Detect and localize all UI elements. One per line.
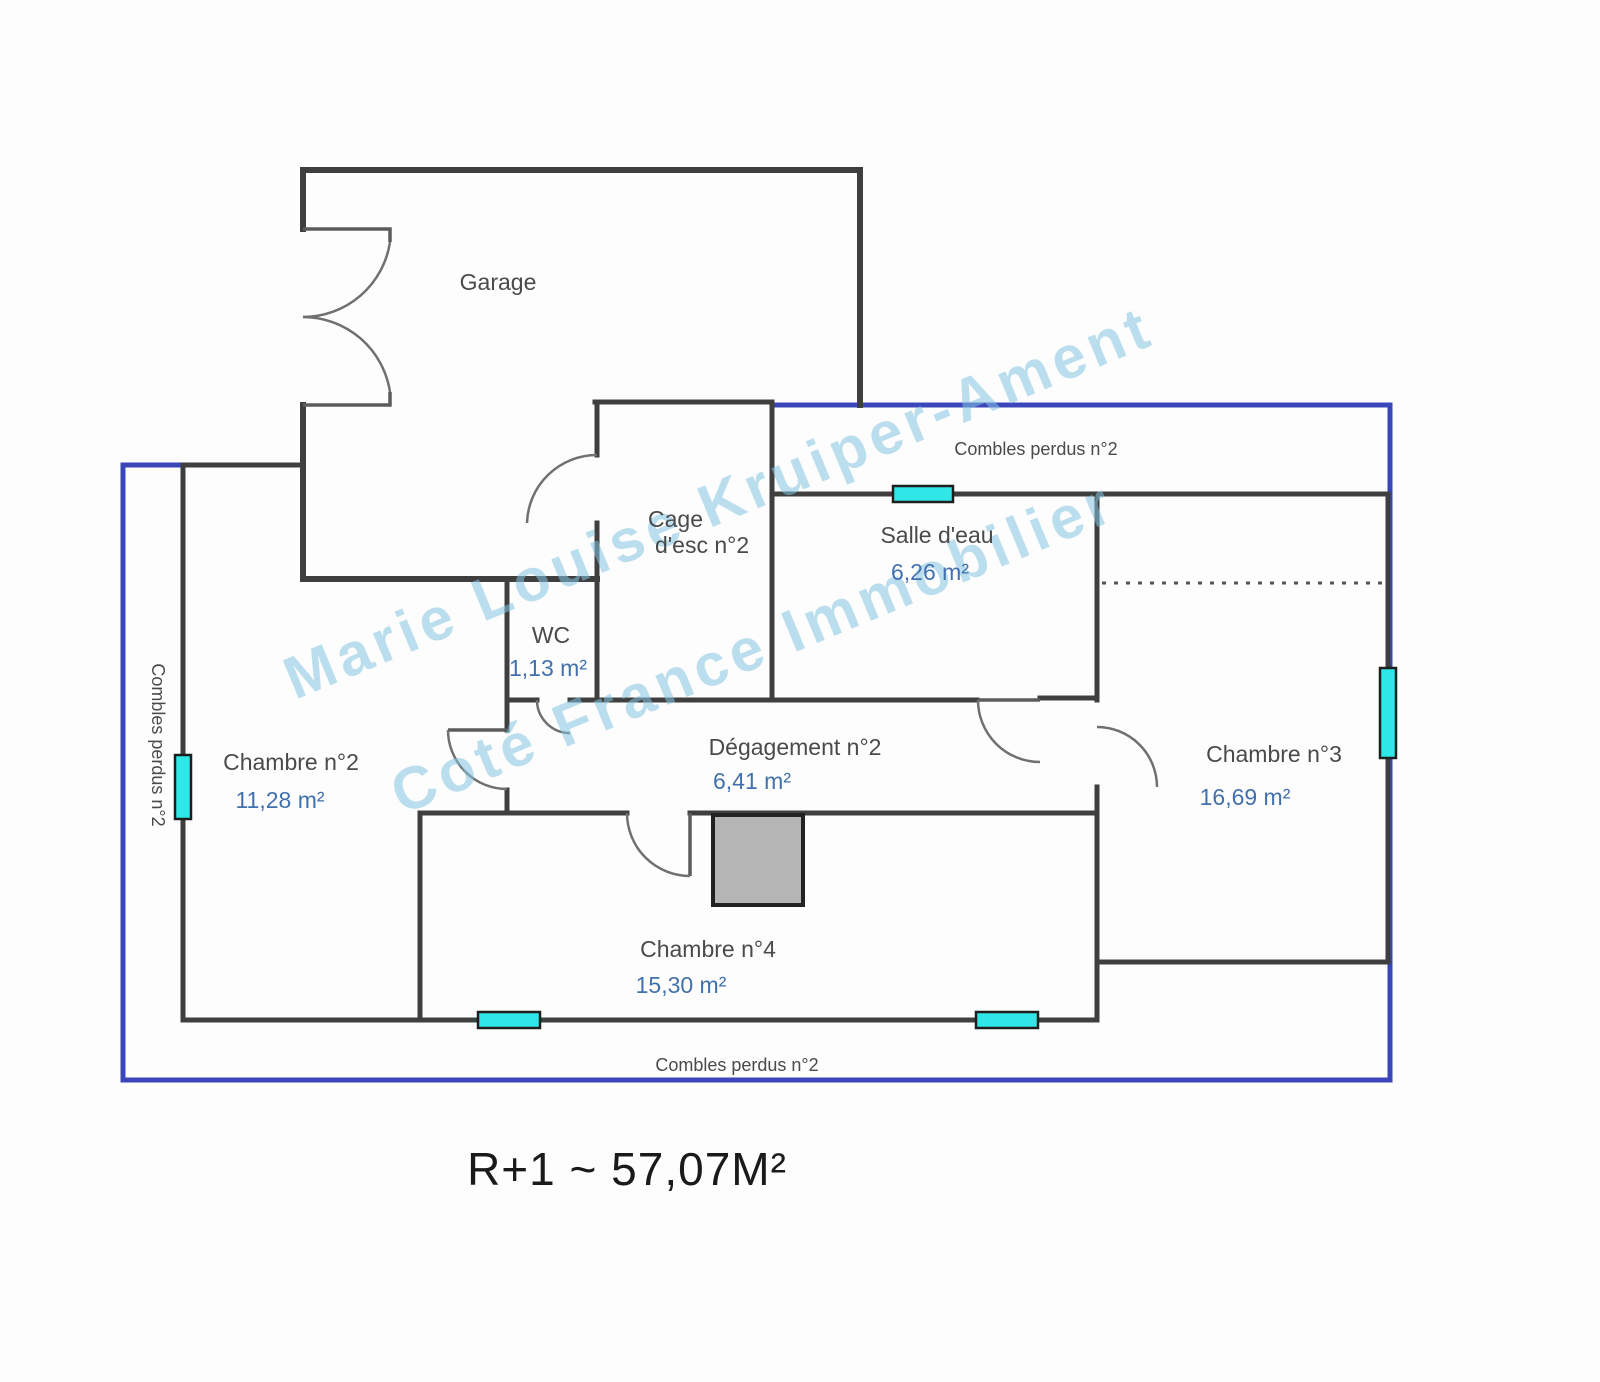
room-label-chambre2: Chambre n°2 [223,749,359,775]
floor-plan: Marie Louise Kruiper-Ament Coté France I… [0,0,1600,1382]
window-chambre4-right [976,1012,1038,1028]
chambre3-door-arc [1097,727,1157,787]
room-area-wc: 1,13 m² [509,655,587,681]
window-chambre2 [175,755,191,819]
room-area-chambre2: 11,28 m² [235,787,324,813]
cage-door-arc [527,455,597,523]
window-salle-eau [893,486,953,502]
window-chambre4-left [478,1012,540,1028]
room-label-salle-eau: Salle d'eau [880,522,993,548]
room-label-garage: Garage [460,269,537,295]
room-label-chambre4: Chambre n°4 [640,936,776,962]
room-label-chambre3: Chambre n°3 [1206,741,1342,767]
garage-double-door [303,229,390,405]
room-label-cage-line1: Cage [648,506,703,532]
floor-plan-page: Marie Louise Kruiper-Ament Coté France I… [0,0,1600,1382]
chambre4-door [627,813,690,876]
room-label-cage-line2: d'esc n°2 [655,532,749,558]
floor-title: R+1 ~ 57,07M² [467,1143,787,1195]
room-label-wc: WC [532,622,570,648]
room-label-degagement: Dégagement n°2 [709,734,882,760]
salle-eau-door [978,700,1040,762]
combles-label-top: Combles perdus n°2 [954,439,1117,459]
chimney-block [713,815,803,905]
room-area-chambre4: 15,30 m² [636,972,727,998]
room-area-salle-eau: 6,26 m² [891,559,969,585]
room-area-degagement: 6,41 m² [713,768,791,794]
window-chambre3 [1380,668,1396,758]
combles-label-left: Combles perdus n°2 [148,663,168,826]
room-area-chambre3: 16,69 m² [1200,784,1291,810]
combles-label-bottom: Combles perdus n°2 [655,1055,818,1075]
